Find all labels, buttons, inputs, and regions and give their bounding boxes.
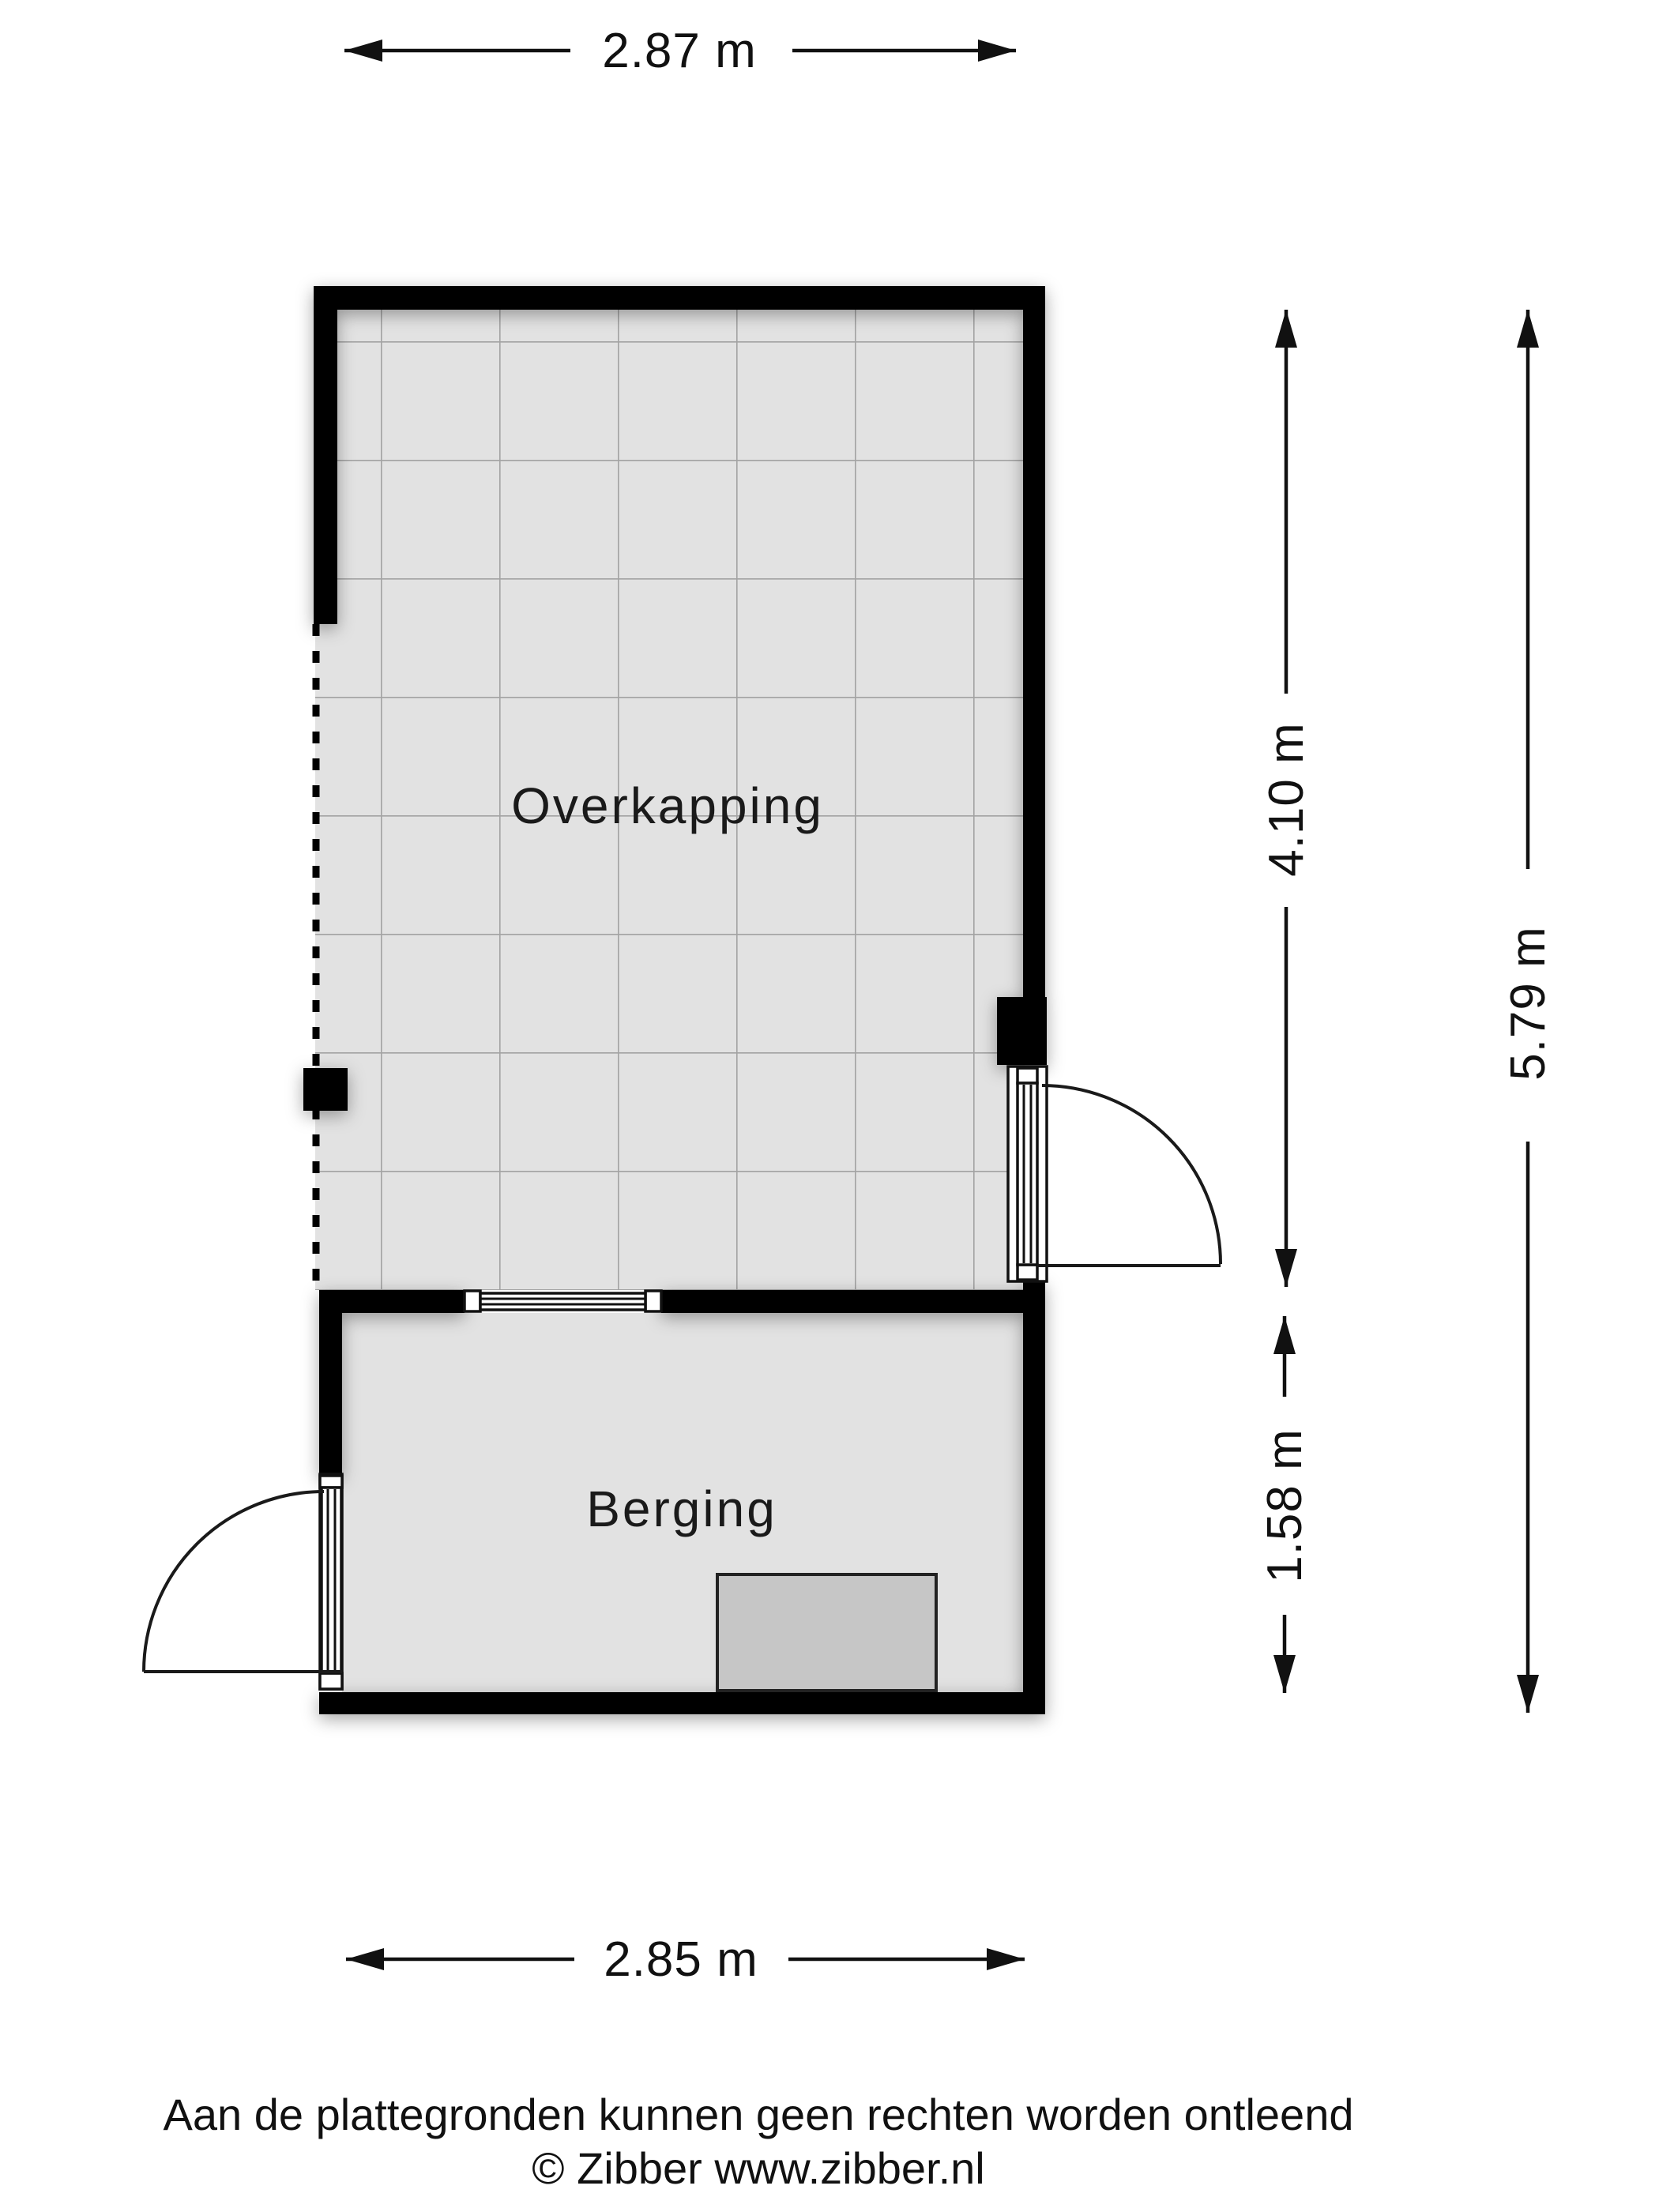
wall-right-upper bbox=[1023, 286, 1045, 1065]
door-right bbox=[1008, 1066, 1221, 1281]
window-cap-right bbox=[645, 1291, 661, 1311]
window-cap-left bbox=[465, 1291, 480, 1311]
arrowhead-right-icon bbox=[987, 1948, 1025, 1970]
post-right bbox=[997, 997, 1047, 1065]
dimension-label-berging-depth: 1.58 m bbox=[1258, 1428, 1312, 1583]
door-right-swing-arc bbox=[1042, 1085, 1221, 1264]
dimension-bottom-width: 2.85 m bbox=[346, 1932, 1025, 1987]
arrowhead-left-icon bbox=[344, 39, 382, 62]
post-left bbox=[303, 1068, 348, 1111]
dimension-total-depth: 5.79 m bbox=[1501, 310, 1556, 1713]
footer-credit: © Zibber www.zibber.nl bbox=[532, 2143, 984, 2193]
wall-bottom bbox=[319, 1692, 1045, 1714]
room-label-overkapping: Overkapping bbox=[511, 777, 824, 834]
door-right-cap-top bbox=[1018, 1068, 1037, 1083]
arrowhead-right-icon bbox=[978, 39, 1016, 62]
floor-plan-svg: Overkapping Berging 2.87 m 4.10 m 5.79 m… bbox=[0, 0, 1659, 2212]
dimension-label-total-depth: 5.79 m bbox=[1501, 926, 1556, 1081]
dimension-overkapping-depth: 4.10 m bbox=[1259, 310, 1314, 1287]
door-left-cap-top bbox=[320, 1476, 342, 1488]
arrowhead-up-icon bbox=[1517, 310, 1539, 348]
arrowhead-down-icon bbox=[1275, 1249, 1297, 1287]
arrowhead-down-icon bbox=[1517, 1675, 1539, 1713]
storage-object bbox=[717, 1574, 936, 1691]
wall-divider-right bbox=[661, 1290, 1045, 1313]
dimension-top-width: 2.87 m bbox=[344, 24, 1016, 78]
arrowhead-down-icon bbox=[1273, 1655, 1296, 1693]
dimension-label-bottom-width: 2.85 m bbox=[604, 1932, 758, 1987]
door-left-leaf-panel bbox=[322, 1488, 341, 1673]
room-label-berging: Berging bbox=[586, 1480, 777, 1537]
arrowhead-left-icon bbox=[346, 1948, 384, 1970]
floor-plan-page: Overkapping Berging 2.87 m 4.10 m 5.79 m… bbox=[0, 0, 1659, 2212]
wall-berging-right bbox=[1023, 1290, 1045, 1714]
door-right-leaf-panel bbox=[1018, 1083, 1037, 1265]
arrowhead-up-icon bbox=[1275, 310, 1297, 348]
dimension-label-overkapping-depth: 4.10 m bbox=[1259, 722, 1314, 877]
arrowhead-up-icon bbox=[1273, 1316, 1296, 1354]
window-pane bbox=[480, 1293, 645, 1310]
door-left-swing-arc bbox=[144, 1492, 324, 1672]
wall-berging-left bbox=[319, 1290, 342, 1476]
door-left-cap-bottom bbox=[320, 1673, 342, 1689]
dimension-label-top-width: 2.87 m bbox=[602, 24, 757, 78]
wall-top bbox=[314, 286, 1045, 310]
door-right-cap-bottom bbox=[1018, 1265, 1037, 1280]
wall-left-upper bbox=[314, 286, 337, 624]
window bbox=[465, 1291, 661, 1311]
footer-disclaimer: Aan de plattegronden kunnen geen rechten… bbox=[164, 2090, 1354, 2139]
door-left bbox=[144, 1474, 342, 1689]
dimension-berging-depth: 1.58 m bbox=[1258, 1316, 1312, 1693]
